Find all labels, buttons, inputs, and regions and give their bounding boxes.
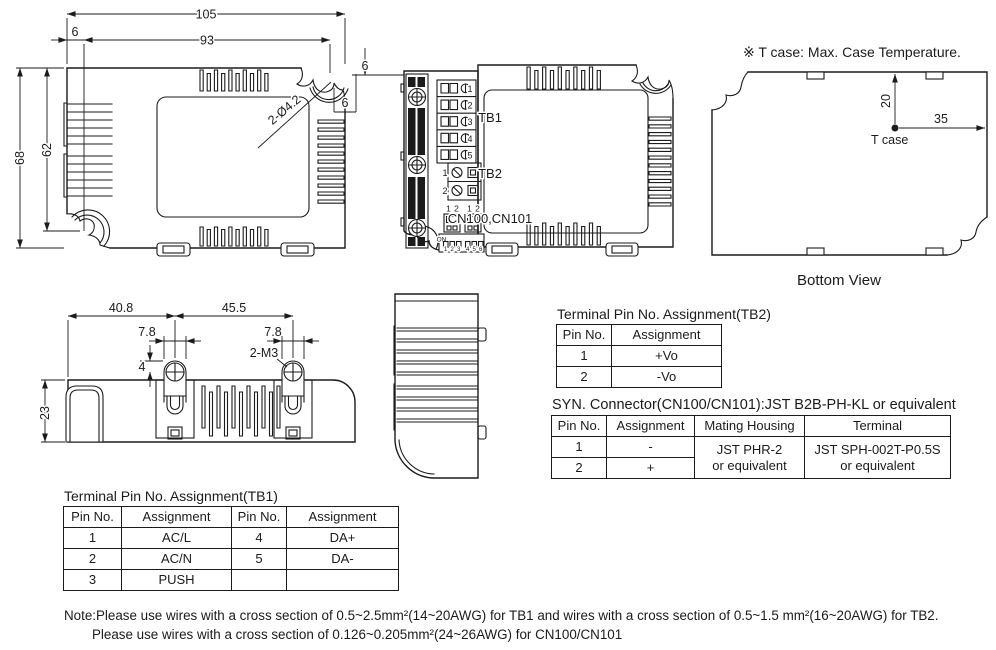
table-header-cell: Assignment	[607, 416, 695, 437]
tb1-pin-1: 1	[467, 84, 472, 94]
dim-label-6-right-h: 6	[342, 96, 349, 110]
table-cell: 4	[232, 528, 287, 549]
tb1-table-title: Terminal Pin No. Assignment(TB1)	[64, 488, 399, 504]
terminal-line1: JST SPH-002T-P0.5S	[814, 442, 940, 457]
tcase-note: ※ T case: Max. Case Temperature.	[743, 44, 961, 61]
table-header-cell: Assignment	[612, 325, 722, 346]
syn-table: Pin No. Assignment Mating Housing Termin…	[551, 415, 951, 479]
table-cell: 1	[64, 528, 122, 549]
syn-table-title: SYN. Connector(CN100/CN101):JST B2B-PH-K…	[552, 397, 956, 413]
table-cell: AC/L	[122, 528, 232, 549]
dim-label-6-left: 6	[72, 25, 79, 39]
dim-label-4: 4	[139, 360, 146, 374]
syn-connector-block: SYN. Connector(CN100/CN101):JST B2B-PH-K…	[551, 397, 956, 479]
table-header-cell: Mating Housing	[695, 416, 805, 437]
table-cell	[287, 570, 399, 591]
table-cell: 2	[64, 549, 122, 570]
tb2-table: Pin No. Assignment 1 +Vo 2 -Vo	[556, 324, 722, 388]
table-header-cell: Pin No.	[64, 507, 122, 528]
table-header-cell: Terminal	[805, 416, 951, 437]
table-header-cell: Pin No.	[557, 325, 612, 346]
dim-label-45-5: 45.5	[222, 301, 246, 315]
tb2-pin-2: 2	[442, 186, 447, 196]
front-view-drawing: 1 2 3 4 5 1 2 1 2 1 2 ON	[401, 65, 673, 256]
table-cell: DA+	[287, 528, 399, 549]
tb2-table-title: Terminal Pin No. Assignment(TB2)	[557, 306, 771, 322]
tb1-pin-3: 3	[467, 117, 472, 127]
cn-area-label: CN100,CN101	[448, 211, 533, 226]
end-view-drawing	[394, 294, 486, 478]
dim-label-6-right-v: 6	[362, 59, 369, 73]
side-view-drawing: 40.8 45.5 7.8 7.8 2-M3 4 23	[38, 301, 355, 442]
tb2-area-label: TB2	[478, 166, 502, 181]
table-header-cell: Pin No.	[232, 507, 287, 528]
table-cell: +	[607, 458, 695, 479]
table-cell: PUSH	[122, 570, 232, 591]
dim-label-23: 23	[38, 406, 52, 420]
table-cell	[232, 570, 287, 591]
table-cell: -	[607, 437, 695, 458]
top-view-drawing: 105 93 6 68 62 2-Ø4.2 6 6	[13, 8, 404, 257]
dim-label-68: 68	[13, 151, 27, 165]
dim-label-7-8-left: 7.8	[138, 325, 155, 339]
dim-label-105: 105	[196, 8, 217, 22]
mating-housing-line2: or equivalent	[712, 458, 786, 473]
hole-callout-label: 2-Ø4.2	[265, 92, 303, 127]
tb2-terminal-block: 1 2	[442, 163, 481, 200]
tb1-pin-4: 4	[467, 134, 472, 144]
table-cell: 2	[552, 458, 607, 479]
table-cell: +Vo	[612, 346, 722, 367]
tb1-terminal-block: 1 2 3 4 5	[437, 80, 476, 163]
table-cell: 3	[64, 570, 122, 591]
dim-label-20: 20	[879, 94, 893, 108]
mating-housing-line1: JST PHR-2	[717, 442, 783, 457]
dip-switch: ON 1 2 3 4 5 6	[437, 234, 484, 253]
tb1-pin-5: 5	[467, 150, 472, 160]
tcase-point	[892, 125, 899, 132]
table-cell-terminal: JST SPH-002T-P0.5Sor equivalent	[805, 437, 951, 479]
terminal-line2: or equivalent	[840, 458, 914, 473]
table-cell-mating-housing: JST PHR-2or equivalent	[695, 437, 805, 479]
table-cell: 1	[557, 346, 612, 367]
table-cell: DA-	[287, 549, 399, 570]
dip-on-label: ON	[437, 237, 447, 244]
dim-label-93: 93	[200, 34, 214, 48]
table-header-cell: Assignment	[122, 507, 232, 528]
dim-label-62: 62	[40, 143, 54, 157]
dim-label-40-8: 40.8	[109, 301, 133, 315]
table-cell: 5	[232, 549, 287, 570]
table-cell: -Vo	[612, 367, 722, 388]
bottom-view-caption: Bottom View	[797, 272, 881, 289]
dim-label-7-8-right: 7.8	[264, 325, 281, 339]
mechanical-drawing-page: 105 93 6 68 62 2-Ø4.2 6 6	[0, 0, 996, 650]
tb1-pin-2: 2	[467, 101, 472, 111]
tb1-area-label: TB1	[478, 110, 502, 125]
note-line-2: Please use wires with a cross section of…	[64, 625, 938, 644]
screw-callout-label: 2-M3	[250, 346, 279, 360]
table-header-cell: Pin No.	[552, 416, 607, 437]
mounting-bracket	[156, 361, 194, 439]
dim-label-35: 35	[934, 112, 948, 126]
tb1-table: Pin No. Assignment Pin No. Assignment 1 …	[63, 506, 399, 591]
table-cell: 2	[557, 367, 612, 388]
bottom-view-drawing: 20 35 T case	[712, 72, 987, 255]
tb2-table-block: Terminal Pin No. Assignment(TB2) Pin No.…	[556, 306, 771, 388]
tb1-table-block: Terminal Pin No. Assignment(TB1) Pin No.…	[63, 488, 399, 591]
table-cell: 1	[552, 437, 607, 458]
tcase-point-label: T case	[871, 133, 908, 147]
tb2-pin-1: 1	[442, 168, 447, 178]
note-line-1: Note:Please use wires with a cross secti…	[64, 606, 938, 625]
wiring-notes: Note:Please use wires with a cross secti…	[64, 606, 938, 644]
table-cell: AC/N	[122, 549, 232, 570]
table-header-cell: Assignment	[287, 507, 399, 528]
